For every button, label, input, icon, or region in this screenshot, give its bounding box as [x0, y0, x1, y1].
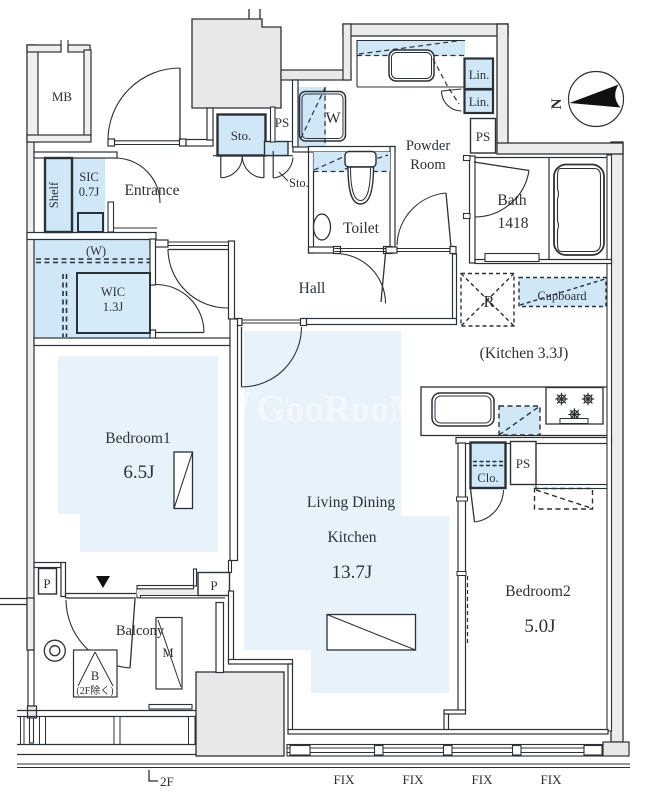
svg-text:Kitchen: Kitchen: [327, 529, 376, 546]
svg-text:(2F除く): (2F除く): [76, 684, 113, 697]
svg-text:Bedroom1: Bedroom1: [105, 430, 170, 447]
svg-text:(Kitchen 3.3J): (Kitchen 3.3J): [480, 345, 569, 362]
svg-text:Toilet: Toilet: [343, 220, 380, 237]
svg-text:Shelf: Shelf: [47, 181, 61, 208]
svg-text:Bedroom2: Bedroom2: [505, 583, 570, 600]
svg-text:6.5J: 6.5J: [123, 462, 154, 483]
svg-text:Room: Room: [410, 157, 446, 173]
svg-text:SIC: SIC: [79, 170, 98, 184]
svg-text:WIC: WIC: [101, 285, 125, 299]
svg-text:Powder: Powder: [406, 138, 450, 154]
svg-text:Cupboard: Cupboard: [537, 289, 587, 303]
svg-text:1.3J: 1.3J: [103, 300, 124, 314]
svg-text:FIX: FIX: [334, 772, 356, 787]
svg-text:FIX: FIX: [403, 772, 425, 787]
svg-text:B: B: [91, 669, 99, 683]
svg-text:FIX: FIX: [472, 772, 494, 787]
svg-text:W: W: [325, 110, 341, 127]
svg-text:M: M: [162, 646, 173, 660]
svg-text:P: P: [43, 576, 50, 591]
svg-text:1418: 1418: [498, 215, 529, 232]
svg-text:Lin.: Lin.: [469, 95, 489, 109]
svg-text:FIX: FIX: [541, 772, 563, 787]
svg-text:Lin.: Lin.: [469, 68, 489, 82]
svg-text:0.7J: 0.7J: [79, 185, 100, 199]
svg-text:N: N: [549, 98, 565, 109]
svg-text:Clo.: Clo.: [477, 471, 498, 485]
svg-text:Sto.: Sto.: [231, 128, 252, 143]
svg-text:PS: PS: [476, 129, 490, 144]
svg-text:(W): (W): [86, 244, 106, 258]
svg-text:MB: MB: [52, 89, 73, 104]
svg-text:GooRooM: GooRooM: [256, 388, 425, 430]
svg-text:P: P: [210, 578, 217, 593]
svg-text:PS: PS: [516, 456, 530, 471]
svg-text:Living Dining: Living Dining: [307, 494, 396, 511]
svg-text:Bath: Bath: [497, 192, 527, 209]
svg-text:PS: PS: [275, 115, 289, 130]
svg-text:5.0J: 5.0J: [524, 616, 555, 637]
svg-text:Sto.: Sto.: [289, 176, 309, 190]
svg-text:Entrance: Entrance: [124, 182, 179, 199]
svg-text:Balcony: Balcony: [116, 623, 165, 639]
svg-text:R: R: [483, 292, 494, 311]
svg-text:2F: 2F: [160, 774, 174, 789]
svg-text:Hall: Hall: [299, 280, 326, 297]
svg-text:13.7J: 13.7J: [332, 562, 373, 583]
